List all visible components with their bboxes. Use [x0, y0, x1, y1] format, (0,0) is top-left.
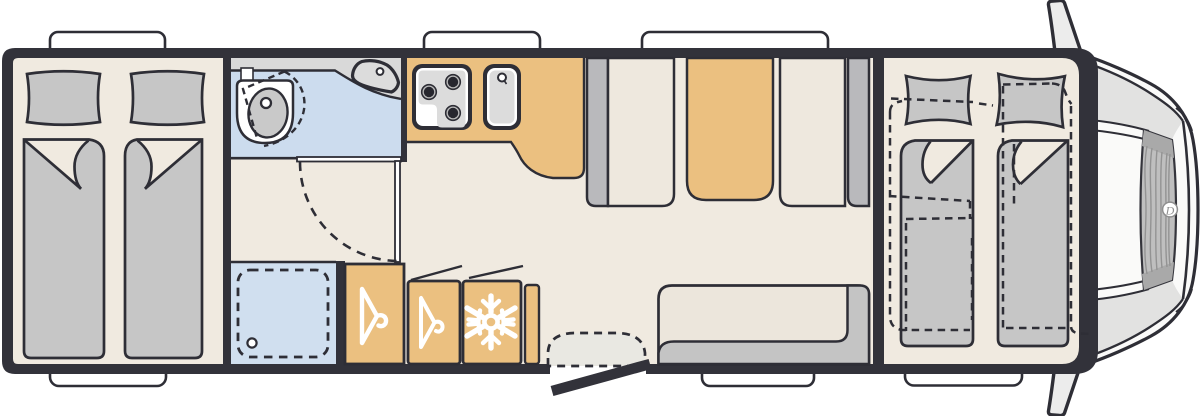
svg-text:D: D — [1165, 204, 1175, 218]
